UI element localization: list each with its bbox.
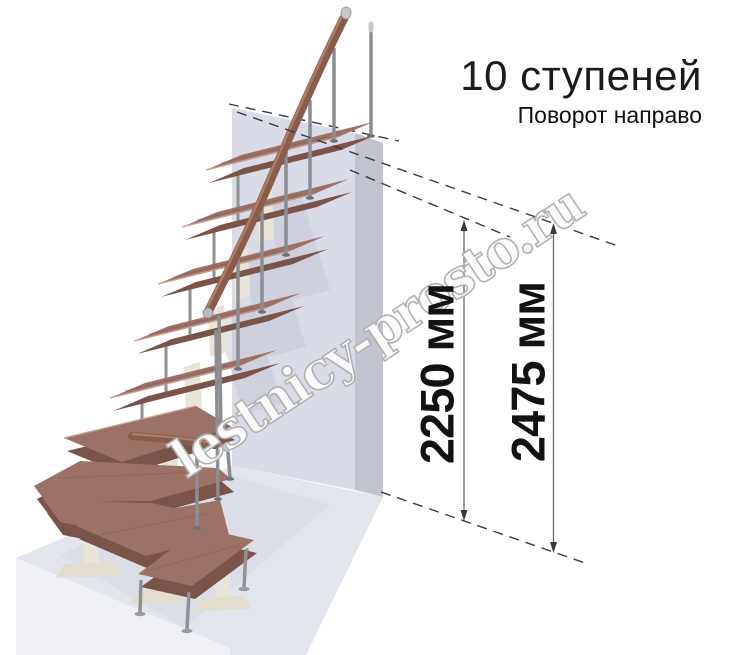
dimension-label-2475: 2475 мм: [501, 282, 556, 462]
dimension-label-2250: 2250 мм: [410, 284, 465, 464]
handrail-elbow-fitting: [203, 308, 213, 318]
dashed-line-floor-level: [381, 492, 585, 563]
staircase-diagram: lestnicy-prosto.ru 2250 мм 2475 мм 10 ст…: [0, 0, 744, 655]
page-title: 10 ступеней: [460, 52, 702, 100]
page-subtitle: Поворот направо: [518, 102, 702, 129]
handrail-top-cap: [341, 7, 351, 19]
